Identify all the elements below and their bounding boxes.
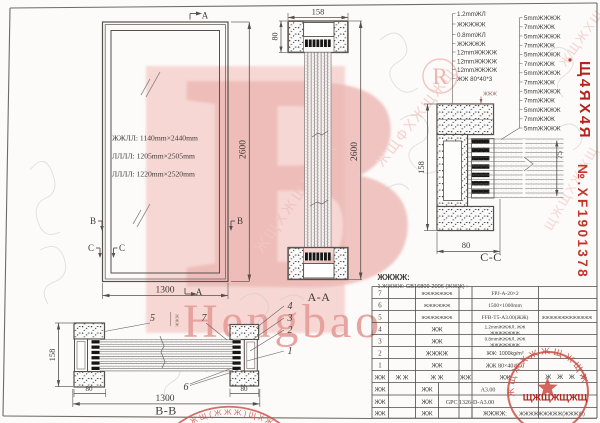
svg-text:ЖЖЖЖЖЖЖ: ЖЖЖЖЖЖЖ	[421, 291, 453, 297]
svg-text:158: 158	[416, 161, 426, 174]
svg-text:C: C	[119, 243, 125, 253]
svg-text:B: B	[90, 216, 96, 226]
svg-text:5: 5	[150, 313, 155, 324]
svg-text:80: 80	[271, 33, 280, 41]
svg-text:GPC 1326-D-A3.00: GPC 1326-D-A3.00	[446, 400, 494, 406]
svg-text:ЖЖЖЖЖ: ЖЖЖЖЖ	[457, 21, 486, 28]
svg-text:158: 158	[312, 7, 325, 17]
svg-text:ЛЛЛЛ: 1205mm×2505mm: ЛЛЛЛ: 1205mm×2505mm	[112, 152, 195, 161]
svg-text:ЖЖЖЖЖЖЖЖЖЖЖЖЖ: ЖЖЖЖЖЖЖЖЖЖЖЖЖ	[542, 315, 592, 320]
svg-text:ЖЖЖЖ: ЖЖЖЖ	[426, 352, 449, 358]
svg-text:158: 158	[47, 349, 57, 362]
svg-text:ЖЖ: ЖЖ	[431, 364, 443, 370]
svg-text:5mmЖЖЖЖ: 5mmЖЖЖЖ	[524, 107, 561, 114]
svg-text:1.ЖЖЖЖ: GB16809-2006 (ЖЖЖ) :: 1.ЖЖЖЖ: GB16809-2006 (ЖЖЖ) :	[378, 284, 469, 290]
svg-text:ЖЖ: ЖЖ	[374, 388, 386, 394]
svg-text:4: 4	[378, 327, 382, 334]
svg-text:12mmЖЖЖЖ: 12mmЖЖЖЖ	[457, 58, 497, 65]
svg-text:2600: 2600	[350, 142, 360, 161]
svg-text:FFB-T5-A3.00(ЖЖ): FFB-T5-A3.00(ЖЖ)	[482, 314, 529, 321]
svg-text:B: B	[237, 216, 243, 226]
svg-text:0.8mmЖЛ: 0.8mmЖЛ	[457, 32, 486, 39]
svg-text:ЖЖ 80*40*3: ЖЖ 80*40*3	[457, 76, 493, 83]
svg-text:ЖЖ: ЖЖ	[421, 400, 433, 406]
svg-text:0.8mmЖЖЖЛ, ЖЖ: 0.8mmЖЖЖЛ, ЖЖ	[485, 337, 527, 342]
svg-text:80: 80	[86, 385, 94, 393]
svg-text:5mmЖЖЖЖ: 5mmЖЖЖЖ	[524, 33, 561, 40]
svg-text:ЖЖ: ЖЖ	[374, 412, 386, 418]
svg-text:№.XF1901378: №.XF1901378	[575, 164, 590, 279]
svg-text:7: 7	[378, 291, 382, 298]
svg-text:1300: 1300	[156, 394, 175, 404]
svg-text:7mmЖЖЖ: 7mmЖЖЖ	[524, 43, 555, 50]
svg-text:5mmЖЖЖЖ: 5mmЖЖЖЖ	[524, 52, 561, 59]
svg-text:ЖЖЖЖ:: ЖЖЖЖ:	[483, 412, 507, 418]
svg-text:ЖЖЖЖ:: ЖЖЖЖ:	[377, 273, 410, 282]
svg-text:1.2mmЖЖЖЛ, ЖЖ: 1.2mmЖЖЖЛ, ЖЖ	[485, 325, 527, 330]
svg-text:Ж Ж: Ж Ж	[431, 376, 444, 382]
svg-text:B-B: B-B	[155, 404, 177, 418]
svg-text:3: 3	[378, 339, 382, 346]
svg-text:2: 2	[288, 325, 293, 336]
svg-text:4: 4	[288, 301, 293, 312]
svg-text:ЖЖЖ: ЖЖЖ	[483, 92, 497, 98]
svg-text:ЖЖ: ЖЖ	[421, 388, 433, 394]
svg-text:ЖЖ: 1000kg/m³: ЖЖ: 1000kg/m³	[487, 351, 524, 357]
svg-text:C-C: C-C	[480, 250, 502, 264]
svg-text:5mmЖЖЖЖ: 5mmЖЖЖЖ	[524, 125, 561, 132]
svg-text:ЖЖЖЖЖЖ: ЖЖЖЖЖЖ	[424, 303, 451, 309]
svg-text:ЖЖ: ЖЖ	[421, 412, 433, 418]
svg-text:1: 1	[288, 346, 293, 357]
svg-text:ЖЖЖЖЖЖЖЖЖ(ЖЖЖЖ): ЖЖЖЖЖЖЖЖЖ(ЖЖЖЖ)	[519, 412, 585, 418]
svg-text:12mmЖЖЖЖ: 12mmЖЖЖЖ	[457, 49, 497, 56]
svg-text:5: 5	[378, 315, 382, 322]
svg-text:7mmЖЖЖ: 7mmЖЖЖ	[524, 116, 555, 123]
svg-text:A: A	[202, 11, 209, 21]
svg-text:ЖЖЖЖЖЖЖ: ЖЖЖЖЖЖЖ	[490, 343, 520, 348]
svg-text:ЖЖ: ЖЖ	[374, 376, 386, 382]
svg-text:5mmЖЖЖЖ: 5mmЖЖЖЖ	[524, 15, 561, 22]
svg-text:5mmЖЖЖЖ: 5mmЖЖЖЖ	[524, 70, 561, 77]
svg-text:7mmЖЖЖ: 7mmЖЖЖ	[524, 61, 555, 68]
svg-text:7mmЖЖЖ: 7mmЖЖЖ	[524, 24, 555, 31]
svg-text:ЩЖЩЖЩЖЩ: ЩЖЩЖЩЖЩ	[523, 393, 588, 404]
svg-text:ЖЖЖЖЖЖЖ: ЖЖЖЖЖЖЖ	[421, 315, 453, 321]
svg-text:80: 80	[462, 240, 471, 250]
svg-text:Ж Ж: Ж Ж	[396, 376, 409, 382]
svg-text:1500×1000mm: 1500×1000mm	[488, 303, 522, 309]
svg-text:ЖЖЖ: ЖЖЖ	[175, 314, 180, 327]
svg-text:5mmЖЖЖЖ: 5mmЖЖЖЖ	[524, 89, 561, 96]
svg-text:2600: 2600	[239, 140, 249, 159]
svg-text:1300: 1300	[156, 286, 175, 296]
svg-text:ЛЛЛЛ: 1220mm×2520mm: ЛЛЛЛ: 1220mm×2520mm	[112, 170, 195, 179]
svg-text:ЖЖЛЛ: 1140mm×2440mm: ЖЖЛЛ: 1140mm×2440mm	[112, 134, 198, 143]
svg-text:FPJ-A-20×2: FPJ-A-20×2	[491, 291, 518, 297]
svg-text:Щ4ЯХ4Я: Щ4ЯХ4Я	[576, 61, 593, 140]
svg-text:A3.00: A3.00	[481, 388, 496, 394]
svg-text:6: 6	[184, 382, 189, 393]
svg-text:7mmЖЖЖ: 7mmЖЖЖ	[524, 79, 555, 86]
svg-text:A-A: A-A	[308, 290, 331, 304]
svg-text:ЖЖ: ЖЖ	[374, 400, 386, 406]
svg-text:1: 1	[378, 363, 381, 370]
svg-text:R: R	[432, 64, 448, 89]
svg-text:3: 3	[287, 313, 293, 324]
svg-text:ЖЩЖХЩ: ЖЩЖХЩ	[556, 6, 600, 70]
svg-text:C: C	[88, 243, 94, 253]
svg-text:ЖЖЖЖЖЖЖ: ЖЖЖЖЖЖЖ	[490, 331, 520, 336]
svg-text:6: 6	[378, 303, 382, 310]
svg-text:ЖЖ: ЖЖ	[460, 376, 472, 382]
svg-text:ЖЖЖЖЖ: ЖЖЖЖЖ	[457, 41, 486, 48]
svg-text:Ж Щ ( Ж Ж Ж ) Щ Х Ж: Ж Щ ( Ж Ж Ж ) Щ Х Ж	[189, 408, 275, 423]
svg-text:12mmЖЖЖЖ: 12mmЖЖЖЖ	[457, 67, 497, 74]
svg-text:ЖЖ: ЖЖ	[431, 328, 443, 334]
svg-text:ЖЖ: ЖЖ	[431, 340, 443, 346]
svg-text:2: 2	[378, 351, 382, 358]
svg-text:1.2mmЖЛ: 1.2mmЖЛ	[457, 11, 486, 18]
svg-text:80: 80	[241, 385, 249, 393]
svg-text:75: 75	[555, 151, 564, 159]
svg-text:7mmЖЖЖ: 7mmЖЖЖ	[524, 98, 555, 105]
